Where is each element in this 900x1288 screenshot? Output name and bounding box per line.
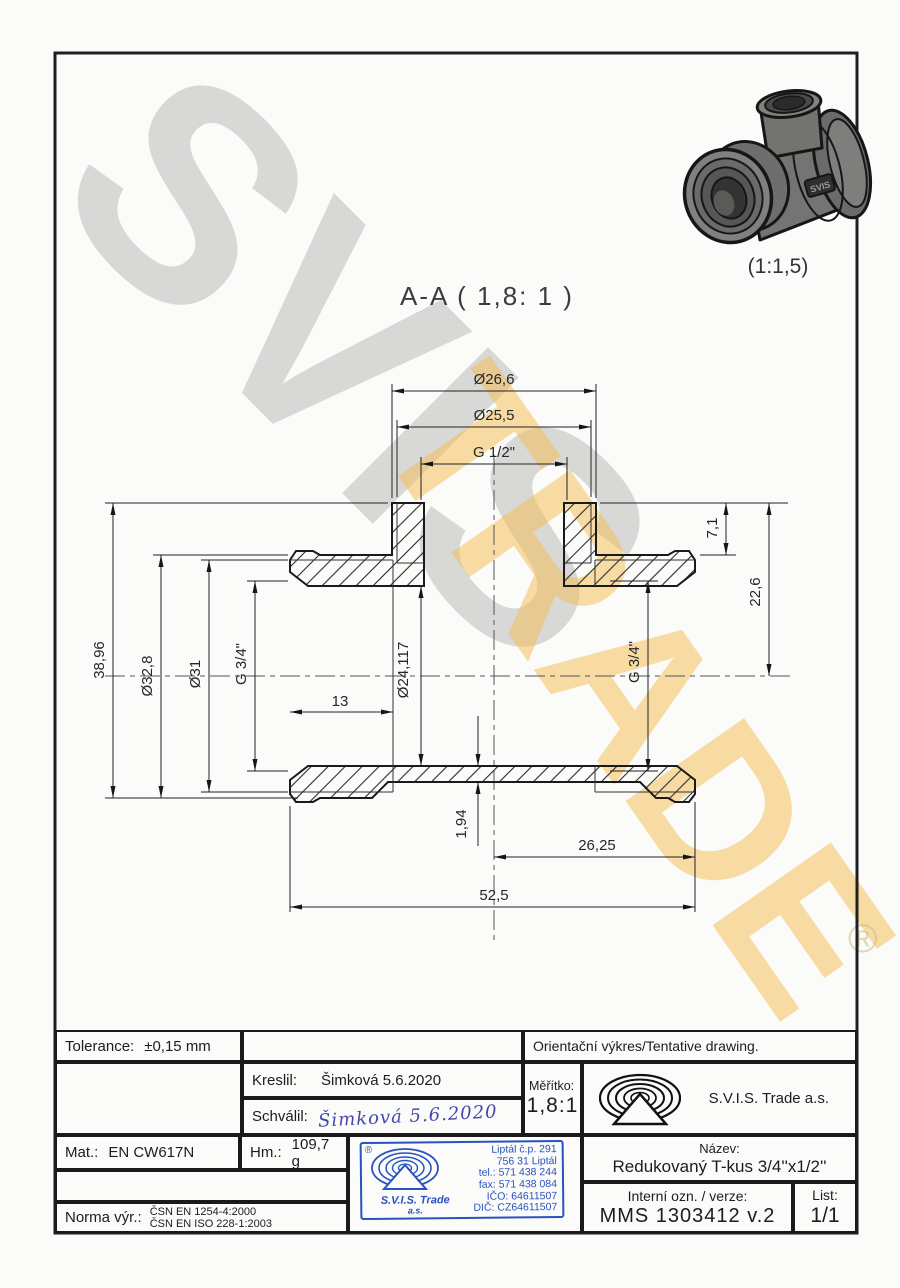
title-label: Název:: [699, 1141, 739, 1156]
tolerance-value: ±0,15 mm: [144, 1038, 211, 1055]
stamp-logo-block: ® S.V.I.S. Trade a.s.: [367, 1145, 464, 1216]
scale-cell: Měřítko: 1,8:1: [523, 1062, 582, 1135]
internal-id-value: MMS 1303412 v.2: [600, 1205, 776, 1228]
scale-label: Měřítko:: [529, 1079, 574, 1093]
internal-id-cell: Interní ozn. / verze: MMS 1303412 v.2: [582, 1182, 793, 1233]
orientation-note-cell: Orientační výkres/Tentative drawing.: [523, 1030, 857, 1062]
kreslil-label: Kreslil:: [252, 1072, 297, 1089]
sheet-number-cell: List: 1/1: [793, 1182, 857, 1233]
sheet-number-value: 1/1: [810, 1204, 839, 1228]
drawing-sheet: SVIS TRADE ® A-A ( 1,8: 1 ): [0, 0, 900, 1288]
schvalil-cell: Schválil: Šimková 5.6.2020: [242, 1098, 523, 1135]
empty-cell-2: [55, 1062, 242, 1135]
title-block: Tolerance: ±0,15 mm Orientační výkres/Te…: [0, 0, 900, 1288]
schvalil-label: Schválil:: [252, 1108, 308, 1125]
mass-value: 109,7 g: [292, 1136, 338, 1170]
company-cell: S.V.I.S. Trade a.s.: [582, 1062, 857, 1135]
kreslil-value: Šimková 5.6.2020: [321, 1072, 441, 1089]
approval-signature: Šimková 5.6.2020: [317, 1101, 498, 1131]
stamp-cell: ® S.V.I.S. Trade a.s. Liptál č.p. 291 75…: [348, 1135, 582, 1233]
mass-cell: Hm.: 109,7 g: [240, 1135, 348, 1170]
internal-id-label: Interní ozn. / verze:: [628, 1188, 748, 1204]
stamp-address-block: Liptál č.p. 291 756 31 Liptál tel.: 571 …: [473, 1144, 558, 1215]
material-value: EN CW617N: [108, 1144, 194, 1161]
empty-cell-1: [242, 1030, 523, 1062]
mass-label: Hm.:: [250, 1144, 282, 1161]
material-label: Mat.:: [65, 1144, 98, 1161]
company-stamp: ® S.V.I.S. Trade a.s. Liptál č.p. 291 75…: [360, 1140, 565, 1220]
sheet-number-label: List:: [812, 1187, 838, 1203]
material-cell: Mat.: EN CW617N: [55, 1135, 240, 1170]
norma-label: Norma výr.:: [65, 1209, 142, 1226]
stamp-registered-icon: ®: [365, 1145, 372, 1156]
norma-standards: ČSN EN 1254-4:2000 ČSN EN ISO 228-1:2003: [150, 1206, 272, 1230]
scale-value: 1,8:1: [527, 1094, 579, 1118]
stamp-company-suffix: a.s.: [408, 1206, 423, 1215]
part-title: Redukovaný T-kus 3/4''x1/2'': [613, 1157, 827, 1177]
norma-cell: Norma výr.: ČSN EN 1254-4:2000 ČSN EN IS…: [55, 1202, 348, 1233]
company-name: S.V.I.S. Trade a.s.: [709, 1090, 829, 1107]
tolerance-label: Tolerance:: [65, 1038, 134, 1055]
title-cell: Název: Redukovaný T-kus 3/4''x1/2'': [582, 1135, 857, 1182]
tolerance-cell: Tolerance: ±0,15 mm: [55, 1030, 242, 1062]
empty-cell-3: [55, 1170, 348, 1202]
kreslil-cell: Kreslil: Šimková 5.6.2020: [242, 1062, 523, 1098]
norma-line2: ČSN EN ISO 228-1:2003: [150, 1218, 272, 1230]
norma-line1: ČSN EN 1254-4:2000: [150, 1206, 272, 1218]
orientation-note: Orientační výkres/Tentative drawing.: [533, 1038, 759, 1054]
stamp-line-dic: DIČ: CZ64611507: [473, 1202, 557, 1214]
